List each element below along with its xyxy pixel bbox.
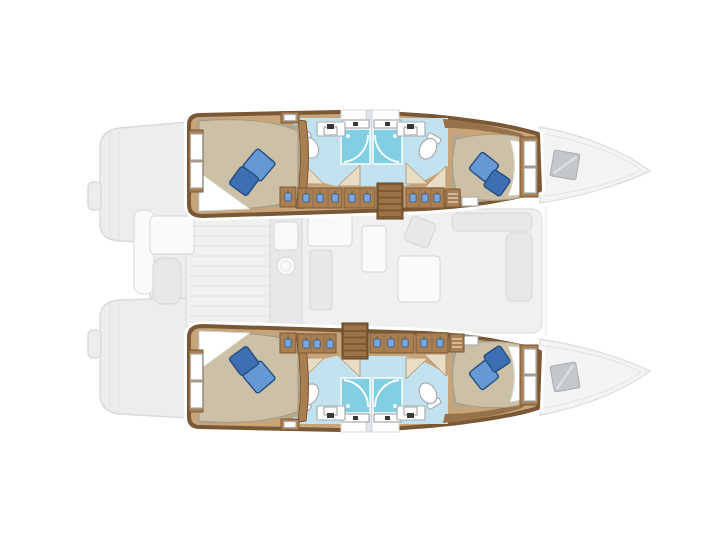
shower-head-aft-icon bbox=[346, 134, 350, 138]
fwd-step bbox=[462, 197, 478, 206]
bow-hatch-starboard-icon bbox=[550, 362, 580, 392]
galley-stove bbox=[277, 257, 295, 275]
dining-table bbox=[398, 256, 440, 302]
cockpit-bench bbox=[153, 258, 181, 304]
saloon-sofa-side bbox=[506, 233, 532, 301]
bow-hatch-port-icon bbox=[550, 150, 580, 180]
catamaran-floor-plan-canvas bbox=[0, 0, 720, 540]
stern-platform-starboard bbox=[100, 298, 188, 418]
shower-mixer-aft-icon bbox=[353, 122, 358, 126]
companionway-stairs-starboard bbox=[342, 323, 368, 359]
cockpit-table bbox=[150, 216, 194, 254]
galley-lower-cabinet bbox=[310, 250, 332, 310]
faucet-aft-icon bbox=[327, 124, 334, 129]
faucet-fwd-icon bbox=[407, 124, 414, 129]
galley-island bbox=[308, 214, 352, 246]
aft-wardrobe-shelf-2 bbox=[191, 162, 203, 188]
aft-wardrobe-shelf-1 bbox=[191, 134, 203, 160]
fwd-wardrobe-shelf-1 bbox=[524, 141, 536, 166]
galley-sink bbox=[274, 222, 298, 250]
saloon-sofa-top bbox=[452, 213, 532, 231]
saloon-fridge bbox=[362, 226, 386, 272]
shower-mixer-fwd-icon bbox=[385, 122, 390, 126]
companionway-stairs-port bbox=[377, 183, 403, 219]
catamaran-floor-plan bbox=[0, 0, 720, 540]
davit-starboard bbox=[88, 330, 101, 358]
fwd-wardrobe-shelf-2 bbox=[524, 168, 536, 193]
davit-port bbox=[88, 182, 101, 210]
deck-vent-grill bbox=[284, 115, 296, 121]
